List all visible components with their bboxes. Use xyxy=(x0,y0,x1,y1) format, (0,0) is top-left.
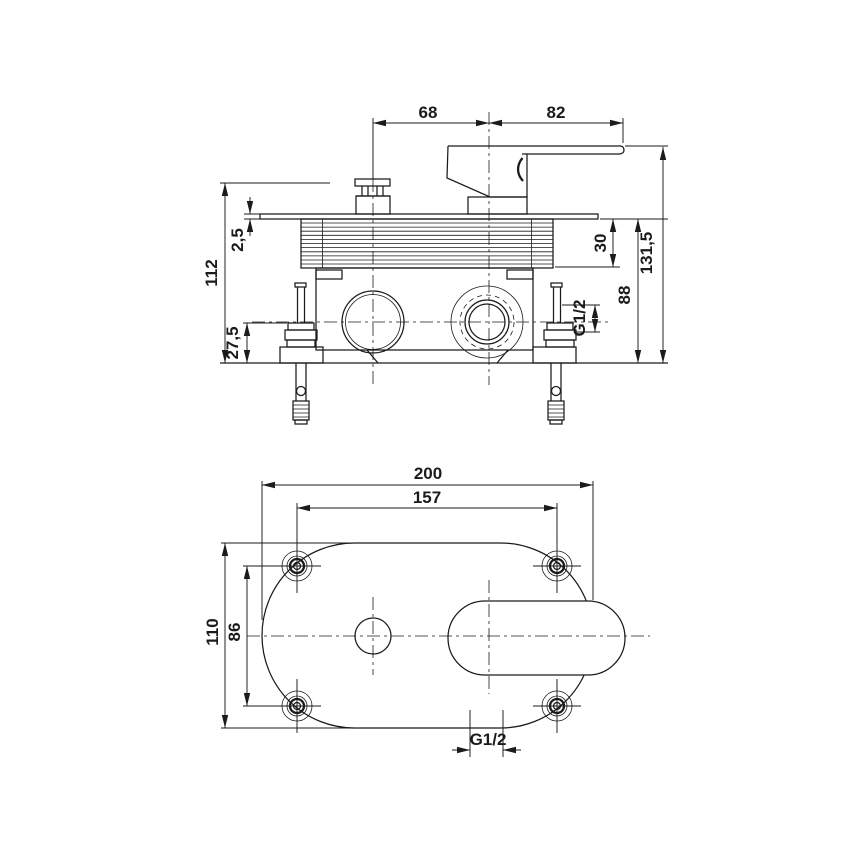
plan-view: 200 157 110 86 G1/2 xyxy=(203,464,650,757)
fixing-screw-top-left xyxy=(243,539,321,593)
dim-110-label: 110 xyxy=(203,618,222,645)
anchor-screw-right xyxy=(548,363,564,424)
drawing-canvas: 68 82 112 2,5 27,5 30 88 131,5 G1/2 xyxy=(0,0,868,868)
dim-88-label: 88 xyxy=(615,286,634,305)
dim-27-5-label: 27,5 xyxy=(223,326,242,359)
technical-drawing: 68 82 112 2,5 27,5 30 88 131,5 G1/2 xyxy=(0,0,868,868)
body-tab-left xyxy=(316,270,342,279)
valve-body xyxy=(316,268,533,363)
center-lines xyxy=(252,112,610,385)
anchor-screw-left xyxy=(293,363,309,424)
handle-outline-plan xyxy=(448,601,625,675)
dim-157-label: 157 xyxy=(413,488,441,507)
protective-sleeve xyxy=(301,219,553,268)
dim-g12-plan-label: G1/2 xyxy=(470,730,507,749)
mixer-handle xyxy=(447,146,624,214)
dim-2-5-label: 2,5 xyxy=(228,228,247,252)
handle-base xyxy=(468,197,527,214)
fixture-geometry xyxy=(220,112,668,424)
dim-131-5-label: 131,5 xyxy=(637,232,656,275)
dim-30-label: 30 xyxy=(591,234,610,253)
handle-joint-curve xyxy=(518,158,523,181)
fixing-screw-bottom-left xyxy=(243,679,321,733)
body-tab-right xyxy=(507,270,533,279)
dim-112-label: 112 xyxy=(202,259,221,286)
dim-68-label: 68 xyxy=(419,103,438,122)
plan-geometry xyxy=(243,539,650,733)
flange-plate xyxy=(260,214,598,219)
side-view: 68 82 112 2,5 27,5 30 88 131,5 G1/2 xyxy=(202,103,668,424)
cartridge-cap xyxy=(355,179,390,214)
dim-82-label: 82 xyxy=(547,103,566,122)
side-view-dimensions: 68 82 112 2,5 27,5 30 88 131,5 G1/2 xyxy=(202,103,668,363)
dim-g12-side-label: G1/2 xyxy=(570,300,589,337)
fixing-screw-bottom-right xyxy=(533,679,581,733)
fixing-screw-top-right xyxy=(533,539,581,593)
dim-86-label: 86 xyxy=(225,623,244,642)
dim-200-label: 200 xyxy=(414,464,442,483)
